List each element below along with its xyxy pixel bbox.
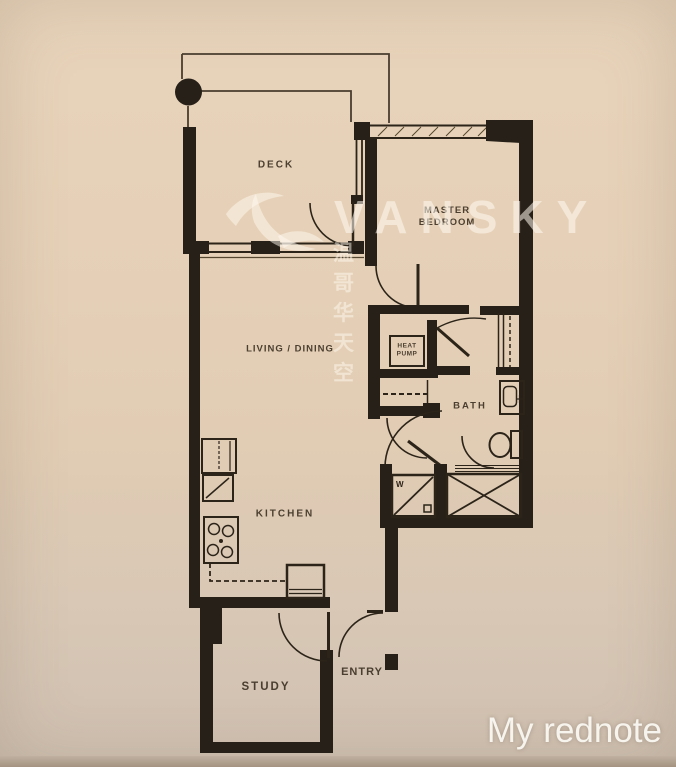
entry-label: ENTRY xyxy=(341,666,383,678)
kitchen-label: KITCHEN xyxy=(256,509,314,520)
entry-wall xyxy=(385,528,398,670)
heat-pump-label: HEAT PUMP xyxy=(390,343,424,360)
bath-toilet xyxy=(490,431,523,458)
closet-angled-door xyxy=(437,318,486,356)
rednote-caption: My rednote xyxy=(487,711,662,751)
washer-mark: W xyxy=(396,480,404,489)
footer-strip xyxy=(0,756,676,767)
master-closet xyxy=(496,313,522,375)
stove xyxy=(204,517,238,563)
living-dining-label: LIVING / DINING xyxy=(246,344,334,355)
bath-label: BATH xyxy=(453,401,487,412)
kitchen-sink-counter xyxy=(287,565,324,598)
floorplan-photo: W xyxy=(0,0,676,767)
deck-railing xyxy=(182,54,389,127)
deck-label: DECK xyxy=(258,160,294,171)
hall-doors xyxy=(385,411,445,469)
master-bedroom-label-line2: BEDROOM xyxy=(412,217,482,229)
master-bedroom-label: MASTER BEDROOM xyxy=(412,205,482,229)
heat-pump-label-line2: PUMP xyxy=(390,351,424,359)
wall-oven xyxy=(203,475,233,501)
entry-door xyxy=(339,612,383,658)
master-door xyxy=(376,264,418,308)
washer-dryer-closet: W xyxy=(392,475,435,517)
study-label: STUDY xyxy=(242,681,291,693)
floorplan-drawing: W xyxy=(0,0,676,767)
fridge xyxy=(202,439,236,473)
shower xyxy=(447,466,521,518)
deck-window xyxy=(196,140,364,258)
deck-walls xyxy=(183,127,196,254)
heat-pump-label-line1: HEAT xyxy=(390,343,424,351)
structural-column xyxy=(175,79,202,106)
counter-dashed xyxy=(210,563,287,581)
deck-door xyxy=(310,202,353,246)
master-window xyxy=(354,120,521,143)
master-bedroom-label-line1: MASTER xyxy=(412,205,482,217)
